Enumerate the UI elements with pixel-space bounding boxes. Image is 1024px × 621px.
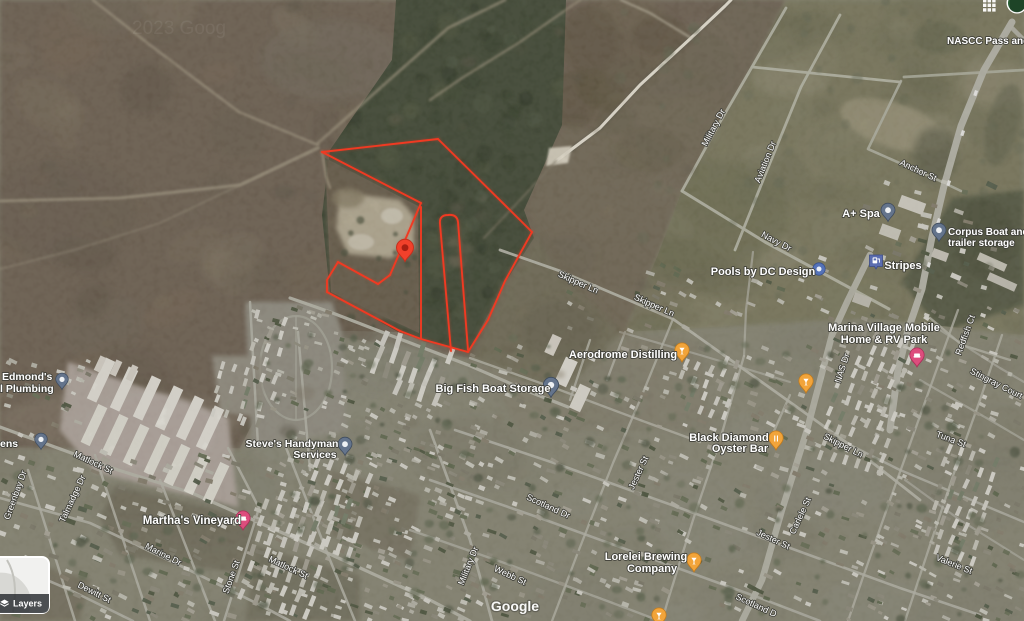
svg-text:Layers: Layers	[13, 599, 42, 609]
svg-text:Aerodrome Distilling: Aerodrome Distilling	[569, 349, 677, 361]
svg-text:Home & RV Park: Home & RV Park	[841, 334, 928, 346]
svg-text:Oyster Bar: Oyster Bar	[712, 443, 769, 455]
svg-text:Google: Google	[491, 598, 539, 614]
svg-text:Edmond's: Edmond's	[2, 371, 52, 383]
svg-text:Big Fish Boat Storage: Big Fish Boat Storage	[436, 383, 551, 395]
svg-text:Marina Village Mobile: Marina Village Mobile	[828, 322, 940, 334]
svg-text:Company: Company	[627, 563, 678, 575]
svg-text:ens: ens	[0, 438, 18, 450]
svg-text:Lorelei Brewing: Lorelei Brewing	[605, 551, 688, 563]
svg-text:2023 Goog: 2023 Goog	[132, 18, 226, 39]
svg-text:Corpus Boat and: Corpus Boat and	[948, 227, 1024, 238]
svg-text:NASCC Pass and: NASCC Pass and	[947, 36, 1024, 47]
svg-text:Stripes: Stripes	[884, 260, 921, 272]
svg-text:trailer storage: trailer storage	[948, 238, 1015, 249]
svg-text:Pools by DC Design: Pools by DC Design	[711, 266, 816, 278]
svg-text:A+ Spa: A+ Spa	[842, 208, 880, 220]
svg-text:Services: Services	[293, 449, 336, 461]
svg-text:Martha's Vineyard: Martha's Vineyard	[143, 515, 241, 527]
svg-text:l Plumbing: l Plumbing	[0, 383, 54, 395]
